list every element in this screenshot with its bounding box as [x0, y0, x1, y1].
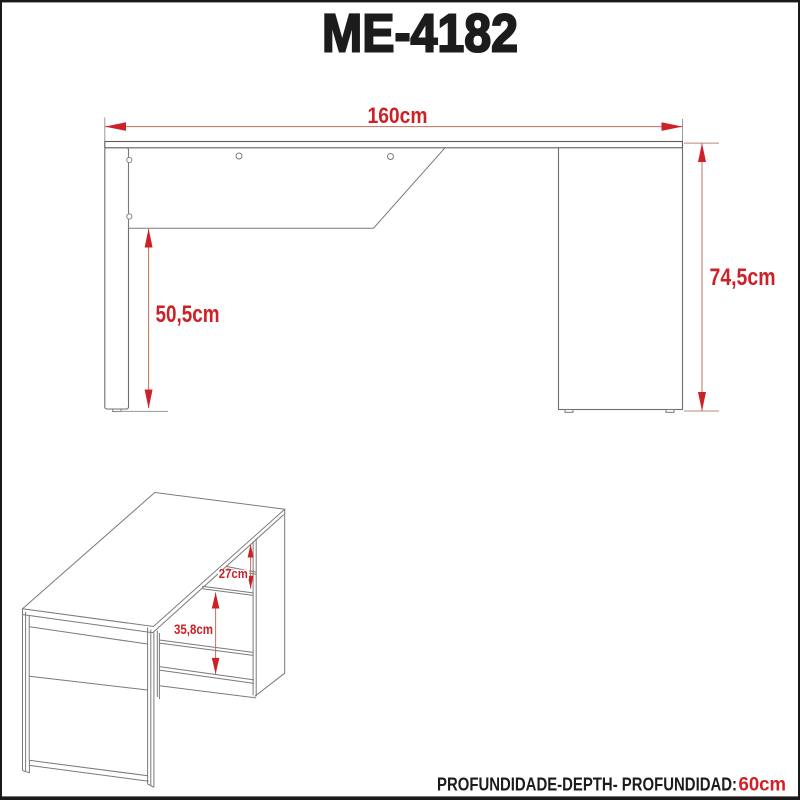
- svg-text:74,5cm: 74,5cm: [710, 264, 776, 291]
- svg-text:PROFUNDIDADE-DEPTH- PROFUNDIDA: PROFUNDIDADE-DEPTH- PROFUNDIDAD:: [437, 774, 737, 795]
- svg-text:27cm: 27cm: [219, 566, 248, 581]
- svg-text:35,8cm: 35,8cm: [174, 622, 213, 637]
- svg-text:50,5cm: 50,5cm: [156, 301, 220, 328]
- svg-text:60cm: 60cm: [739, 775, 787, 796]
- svg-text:ME-4182: ME-4182: [322, 3, 518, 63]
- svg-text:160cm: 160cm: [368, 103, 428, 128]
